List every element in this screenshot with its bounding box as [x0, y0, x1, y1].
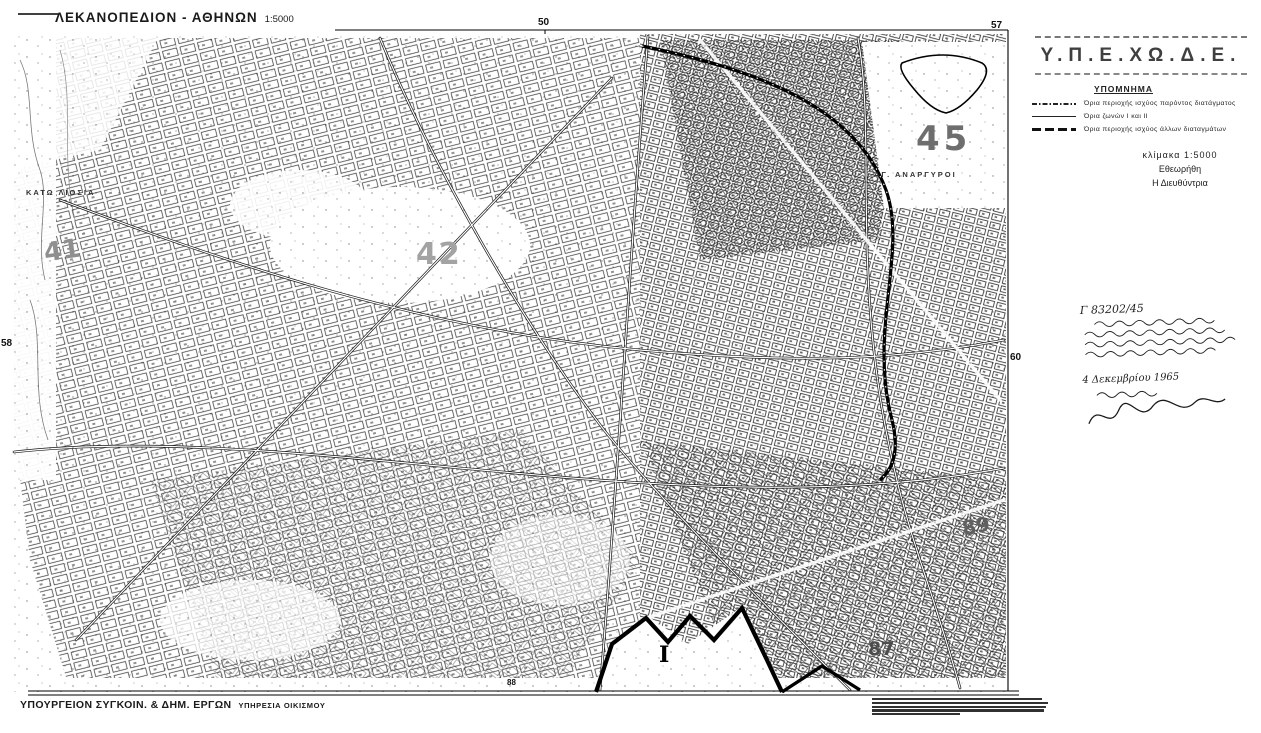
zone-i-label: I [659, 642, 669, 668]
handwritten-annotation: Γ 83202/45 4 Δεκεμβρίου 1965 [1080, 298, 1255, 438]
place-label-agioi-anargyroi: ΑΓ. ΑΝΑΡΓΥΡΟΙ [874, 170, 957, 179]
approver-text: Η Διευθύντρια [1105, 176, 1255, 190]
legend-item-zones: Όρια ζωνών Ι και ΙΙ [1032, 113, 1258, 120]
scale-note: κλίμακα 1:5000 [1105, 148, 1255, 162]
sheet-number-42: 42 [416, 240, 462, 270]
scanned-map-document: ΛΕΚΑΝΟΠΕΔΙΟΝ - ΑΘΗΝΩΝ1:5000 50 57 58 60 … [0, 0, 1261, 733]
long-dash-line-sample [1032, 128, 1076, 131]
edge-tick-50: 50 [538, 17, 549, 28]
legend-item-label: Όρια περιοχής ισχύος άλλων διαταγμάτων [1084, 126, 1226, 133]
edge-tick-88: 88 [507, 678, 516, 687]
approval-block: κλίμακα 1:5000 Εθεωρήθη Η Διευθύντρια [1105, 148, 1255, 190]
edge-tick-57: 57 [991, 20, 1002, 31]
approved-text: Εθεωρήθη [1105, 162, 1255, 176]
handwritten-scribble-lines [1080, 311, 1247, 369]
legend-item-other-decrees: Όρια περιοχής ισχύος άλλων διαταγμάτων [1032, 126, 1258, 133]
fine-print-block [872, 698, 1048, 717]
legend-item-label: Όρια περιοχής ισχύος παρόντος διατάγματο… [1084, 100, 1236, 107]
solid-line-sample [1032, 116, 1076, 118]
map-title-text: ΛΕΚΑΝΟΠΕΔΙΟΝ - ΑΘΗΝΩΝ [55, 10, 258, 25]
legend: Όρια περιοχής ισχύος παρόντος διατάγματο… [1032, 100, 1258, 139]
fine-print-line [872, 698, 1042, 700]
scan-noise [8, 30, 1008, 692]
map-texture [0, 0, 1020, 733]
sheet-number-45: 45 [916, 122, 971, 156]
map-sheet: ΛΕΚΑΝΟΠΕΔΙΟΝ - ΑΘΗΝΩΝ1:5000 50 57 58 60 … [0, 0, 1020, 733]
legend-item-label: Όρια ζωνών Ι και ΙΙ [1084, 113, 1148, 120]
ministry-credit: ΥΠΟΥΡΓΕΙΟΝ ΣΥΓΚΟΙΝ. & ΔΗΜ. ΕΡΓΩΝ [20, 699, 232, 711]
sheet-number-87: 87 [868, 640, 894, 659]
legend-item-present-decree: Όρια περιοχής ισχύος παρόντος διατάγματο… [1032, 100, 1258, 107]
place-label-kato-liosia: ΚΑΤΩ ΛΙΟΣΙΑ [26, 188, 95, 197]
sheet-number-89: 89 [960, 513, 991, 538]
fine-print-line [872, 702, 1048, 704]
footer-credit: ΥΠΟΥΡΓΕΙΟΝ ΣΥΓΚΟΙΝ. & ΔΗΜ. ΕΡΓΩΝΥΠΗΡΕΣΙΑ… [20, 695, 325, 713]
legend-title: ΥΠΟΜΝΗΜΑ [1094, 84, 1153, 94]
fine-print-line [872, 709, 1044, 711]
service-credit: ΥΠΗΡΕΣΙΑ ΟΙΚΙΣΜΟΥ [239, 701, 326, 710]
dash-dot-line-sample [1032, 103, 1076, 105]
ministry-stamp: Υ.Π.Ε.ΧΩ.Δ.Ε. [1035, 36, 1247, 75]
edge-tick-58: 58 [1, 338, 12, 349]
sheet-number-41: 41 [42, 236, 81, 267]
edge-tick-60: 60 [1010, 352, 1021, 363]
fine-print-line [872, 713, 960, 715]
handwritten-signature [1083, 381, 1235, 434]
map-title: ΛΕΚΑΝΟΠΕΔΙΟΝ - ΑΘΗΝΩΝ1:5000 [55, 10, 294, 25]
fine-print-line [872, 706, 1046, 708]
map-title-scale: 1:5000 [265, 14, 294, 25]
